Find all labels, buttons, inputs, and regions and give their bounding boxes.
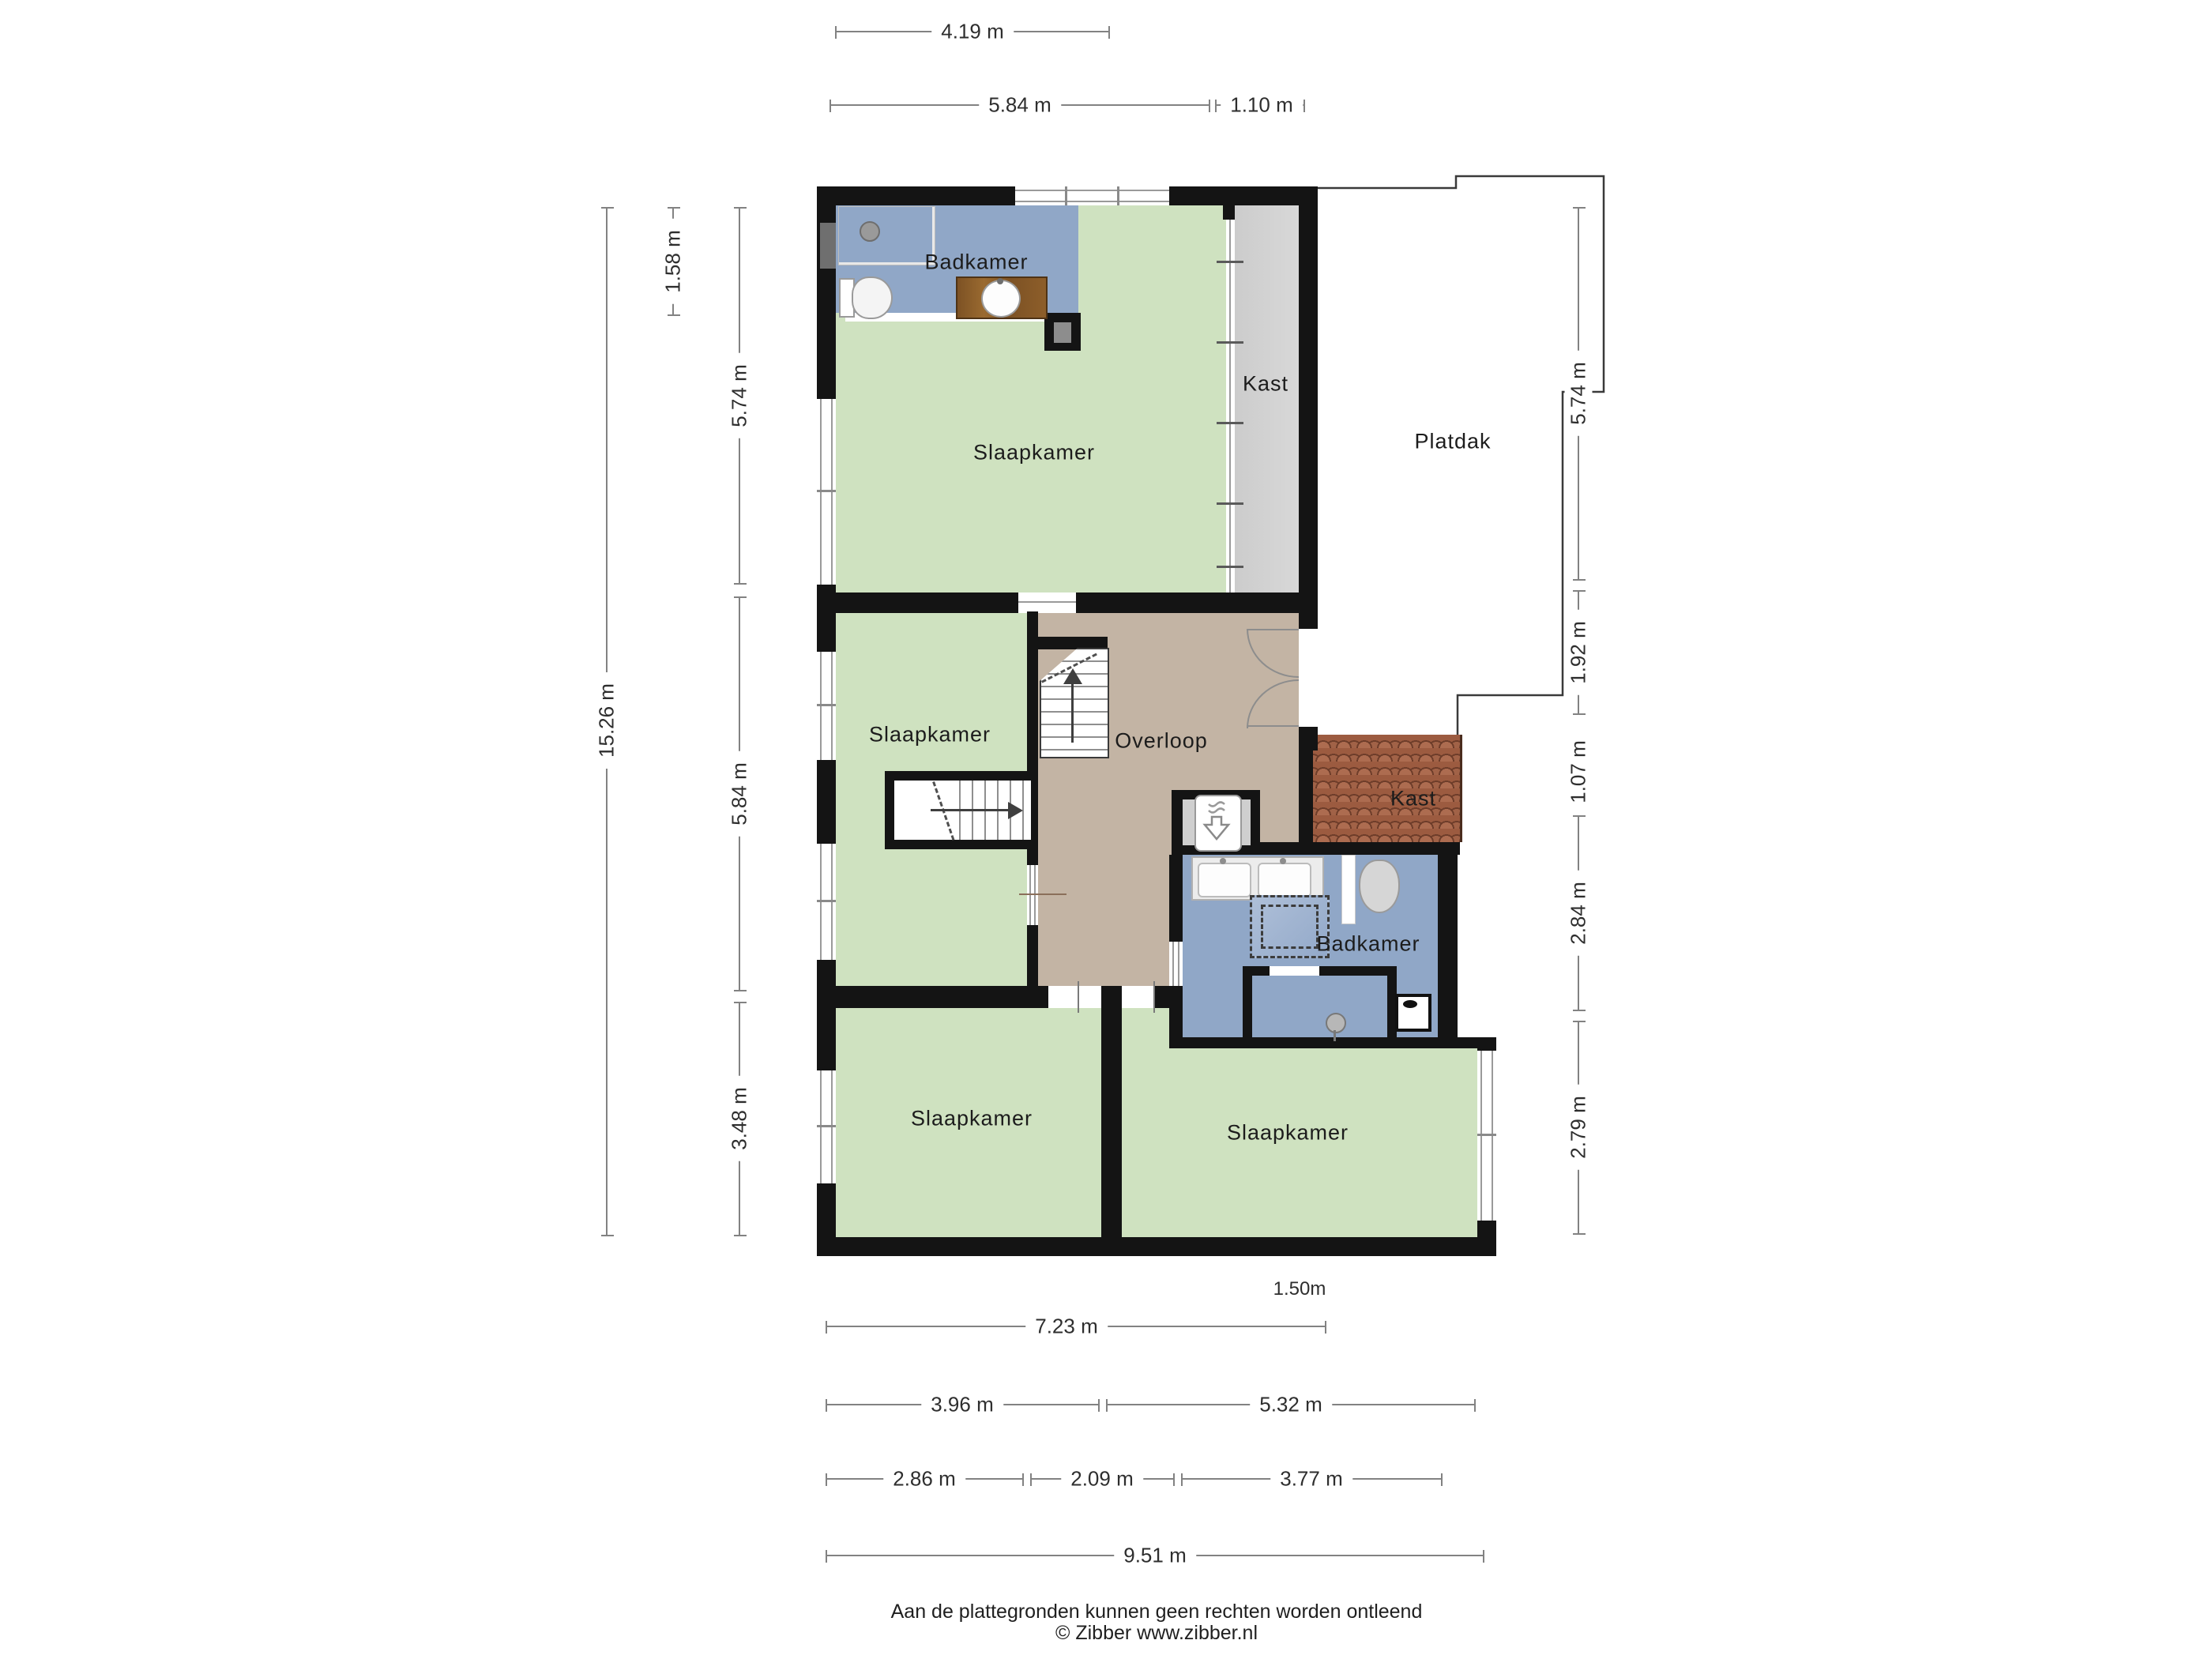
dim-label: 5.74 m [1565,351,1593,436]
wall-bath-north [1260,842,1460,855]
room-label-slaapkamer-bottom-left: Slaapkamer [911,1107,1033,1131]
dim-label: 1.58 m [660,219,687,304]
dim-label: 2.09 m [1061,1465,1143,1493]
stairs-right-arrow-head [1008,802,1023,819]
window-mullion [817,490,836,492]
window-mullion [817,704,836,706]
stairs-right-arrow [931,809,1010,811]
room-label-slaapkamer-middle: Slaapkamer [869,723,991,747]
floor-plan-page: Badkamer Slaapkamer Kast Platdak Slaapka… [0,0,2212,1659]
shower-head-stem [1334,1030,1336,1041]
french-door-leaf [1247,629,1299,630]
dim-label: 3.48 m [726,1076,754,1161]
footer-credit: © Zibber www.zibber.nl [51,1622,2212,1645]
dim-label: 3.96 m [921,1391,1003,1419]
window-mullion [817,1125,836,1127]
room-label-slaapkamer-bottom-right: Slaapkamer [1227,1121,1349,1145]
dim-label: 5.84 m [726,751,754,837]
sliding-door-middle-bedroom [1027,865,1038,925]
wall-kast-middle-left [1299,739,1313,842]
window-mullion [1117,186,1119,205]
dim-label: 5.84 m [979,92,1061,119]
dim-label: 1.92 m [1565,610,1593,695]
dim-label: 4.19 m [931,18,1014,46]
room-label-overloop: Overloop [1115,729,1208,754]
window-top-badkamer [1015,186,1169,205]
room-label-kast-top: Kast [1243,372,1288,397]
room-label-badkamer-middle: Badkamer [1316,932,1420,957]
skylight-dashed-inner [1261,905,1319,949]
room-slaapkamer-bottom-right-east [1397,1048,1477,1237]
wall-divider-head [1101,986,1122,1008]
dim-label: 2.84 m [1565,871,1593,956]
toilet-bowl-middle [1359,860,1400,913]
dim-label: 1.07 m [1565,729,1593,814]
doorway-top-bedroom [1018,592,1076,613]
wall-shower-north [1243,966,1397,976]
boiler-icon [1395,994,1431,1032]
room-label-platdak: Platdak [1414,430,1491,454]
stairs-up-arrow [1071,681,1074,743]
height-note: 1.50m [1264,1277,1336,1302]
wall-bottom-section-a [817,986,1048,1008]
sink-middle-right [1258,863,1311,897]
dim-label: 2.79 m [1565,1085,1593,1170]
wall-shower-west [1243,966,1252,1047]
dim-label: 7.23 m [1025,1313,1108,1341]
kast-divider-tick [1217,566,1243,568]
flue-inner [1054,322,1071,343]
french-door-leaf [1247,725,1299,727]
kast-glass-divider [1226,207,1235,592]
wall-lower-stairs-north [885,771,1031,781]
wall-top-bedroom-south-b [1076,592,1318,613]
kast-divider-tick [1217,502,1243,505]
sink-top [981,280,1021,318]
dim-label: 1.10 m [1221,92,1303,119]
french-door-gap [1299,629,1318,727]
window-mullion [1477,1134,1496,1136]
wall-bath-south [1169,1037,1496,1048]
shower-head-icon [1326,1013,1346,1033]
dim-label: 3.77 m [1270,1465,1352,1493]
shower-head-icon [860,221,880,242]
room-kast-middle-rooftiles [1313,735,1462,842]
wall-right-upper [1299,186,1318,629]
dim-label: 2.86 m [883,1465,965,1493]
footer-disclaimer: Aan de plattegronden kunnen geen rechten… [51,1601,2212,1623]
wall-lower-stairs-west [885,771,894,849]
room-kast-top [1235,205,1299,592]
wall-vent-panel [820,223,836,269]
kast-divider-tick [1217,341,1243,344]
boiler-burner-dot [1403,1000,1417,1008]
dim-label: 15.26 m [593,672,621,769]
wall-bath-east [1438,855,1458,1037]
faucet-dot [997,278,1003,284]
shower-north-opening [1270,966,1319,976]
kast-divider-tick [1217,422,1243,424]
shower-room-floor [1252,976,1387,1037]
toilet-partition [1341,855,1356,924]
room-label-badkamer-top: Badkamer [924,250,1028,275]
dim-label: 5.32 m [1250,1391,1332,1419]
window-mullion [817,900,836,902]
kast-top-stub [1223,205,1235,220]
doorway-threshold-right [1153,981,1155,1013]
sink-middle-left [1198,863,1251,897]
faucet-dot [1280,858,1286,864]
wall-bottom [817,1237,1496,1256]
doorway-threshold-left [1078,981,1079,1013]
room-label-kast-middle: Kast [1390,787,1436,811]
bath-glass-partition [1169,942,1183,986]
toilet-bowl-top [852,276,893,319]
window-mullion [1065,186,1067,205]
wall-bottom-bedrooms-divider [1101,1008,1122,1237]
dim-label: 9.51 m [1114,1542,1196,1570]
shower-enclosure [839,207,935,265]
dim-label: 5.74 m [726,353,754,438]
wall-lower-stairs-south [885,840,1031,849]
ventilation-unit-icon [1194,795,1242,852]
wall-top-bedroom-south-a [817,592,1018,613]
sliding-door-tick [1019,893,1066,895]
kast-divider-tick [1217,261,1243,263]
doorway-top-bedroom-line [1018,601,1076,603]
wall-bath-west-upper [1169,855,1183,942]
stairs-up-arrow-head [1063,668,1082,684]
wall-upper-stairs-north [1035,637,1108,649]
faucet-dot [1220,858,1226,864]
room-label-slaapkamer-top: Slaapkamer [973,441,1095,465]
